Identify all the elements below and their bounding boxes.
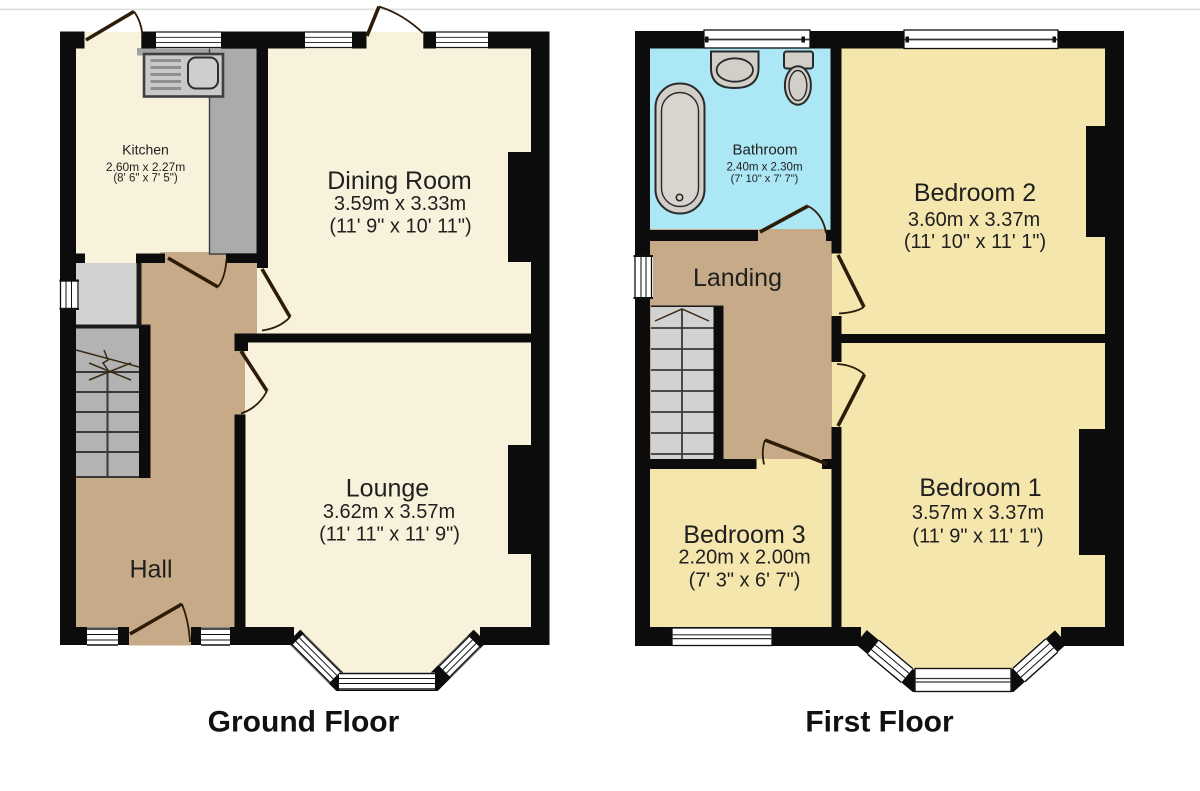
svg-text:(11' 9" x 11' 1"): (11' 9" x 11' 1") — [912, 526, 1043, 548]
svg-text:2.20m x 2.00m: 2.20m x 2.00m — [678, 547, 810, 569]
svg-text:Lounge: Lounge — [346, 475, 429, 503]
svg-text:(11' 11" x 11' 9"): (11' 11" x 11' 9") — [319, 524, 460, 546]
svg-text:Bedroom 1: Bedroom 1 — [919, 474, 1041, 502]
svg-text:Bedroom 2: Bedroom 2 — [914, 179, 1036, 207]
svg-text:(7' 10" x 7' 7"): (7' 10" x 7' 7") — [731, 173, 799, 185]
svg-text:(8' 6" x 7' 5"): (8' 6" x 7' 5") — [113, 173, 177, 185]
svg-text:(11' 9" x 10' 11"): (11' 9" x 10' 11") — [329, 216, 471, 238]
svg-text:(11' 10" x 11' 1"): (11' 10" x 11' 1") — [904, 231, 1046, 253]
svg-text:3.59m x 3.33m: 3.59m x 3.33m — [334, 193, 466, 215]
svg-text:Ground Floor: Ground Floor — [208, 706, 400, 739]
svg-text:3.62m x 3.57m: 3.62m x 3.57m — [323, 501, 455, 523]
svg-text:Dining Room: Dining Room — [327, 167, 472, 195]
svg-text:First Floor: First Floor — [805, 706, 954, 739]
svg-text:Landing: Landing — [693, 264, 782, 292]
svg-text:(7' 3" x 6' 7"): (7' 3" x 6' 7") — [689, 570, 801, 592]
svg-text:Bedroom 3: Bedroom 3 — [683, 521, 805, 549]
svg-text:Hall: Hall — [129, 556, 172, 584]
svg-text:3.57m x 3.37m: 3.57m x 3.37m — [912, 502, 1044, 524]
svg-text:Kitchen: Kitchen — [122, 142, 169, 158]
svg-text:2.40m x 2.30m: 2.40m x 2.30m — [726, 162, 802, 174]
svg-text:3.60m x 3.37m: 3.60m x 3.37m — [908, 209, 1040, 231]
svg-text:Bathroom: Bathroom — [732, 142, 797, 159]
